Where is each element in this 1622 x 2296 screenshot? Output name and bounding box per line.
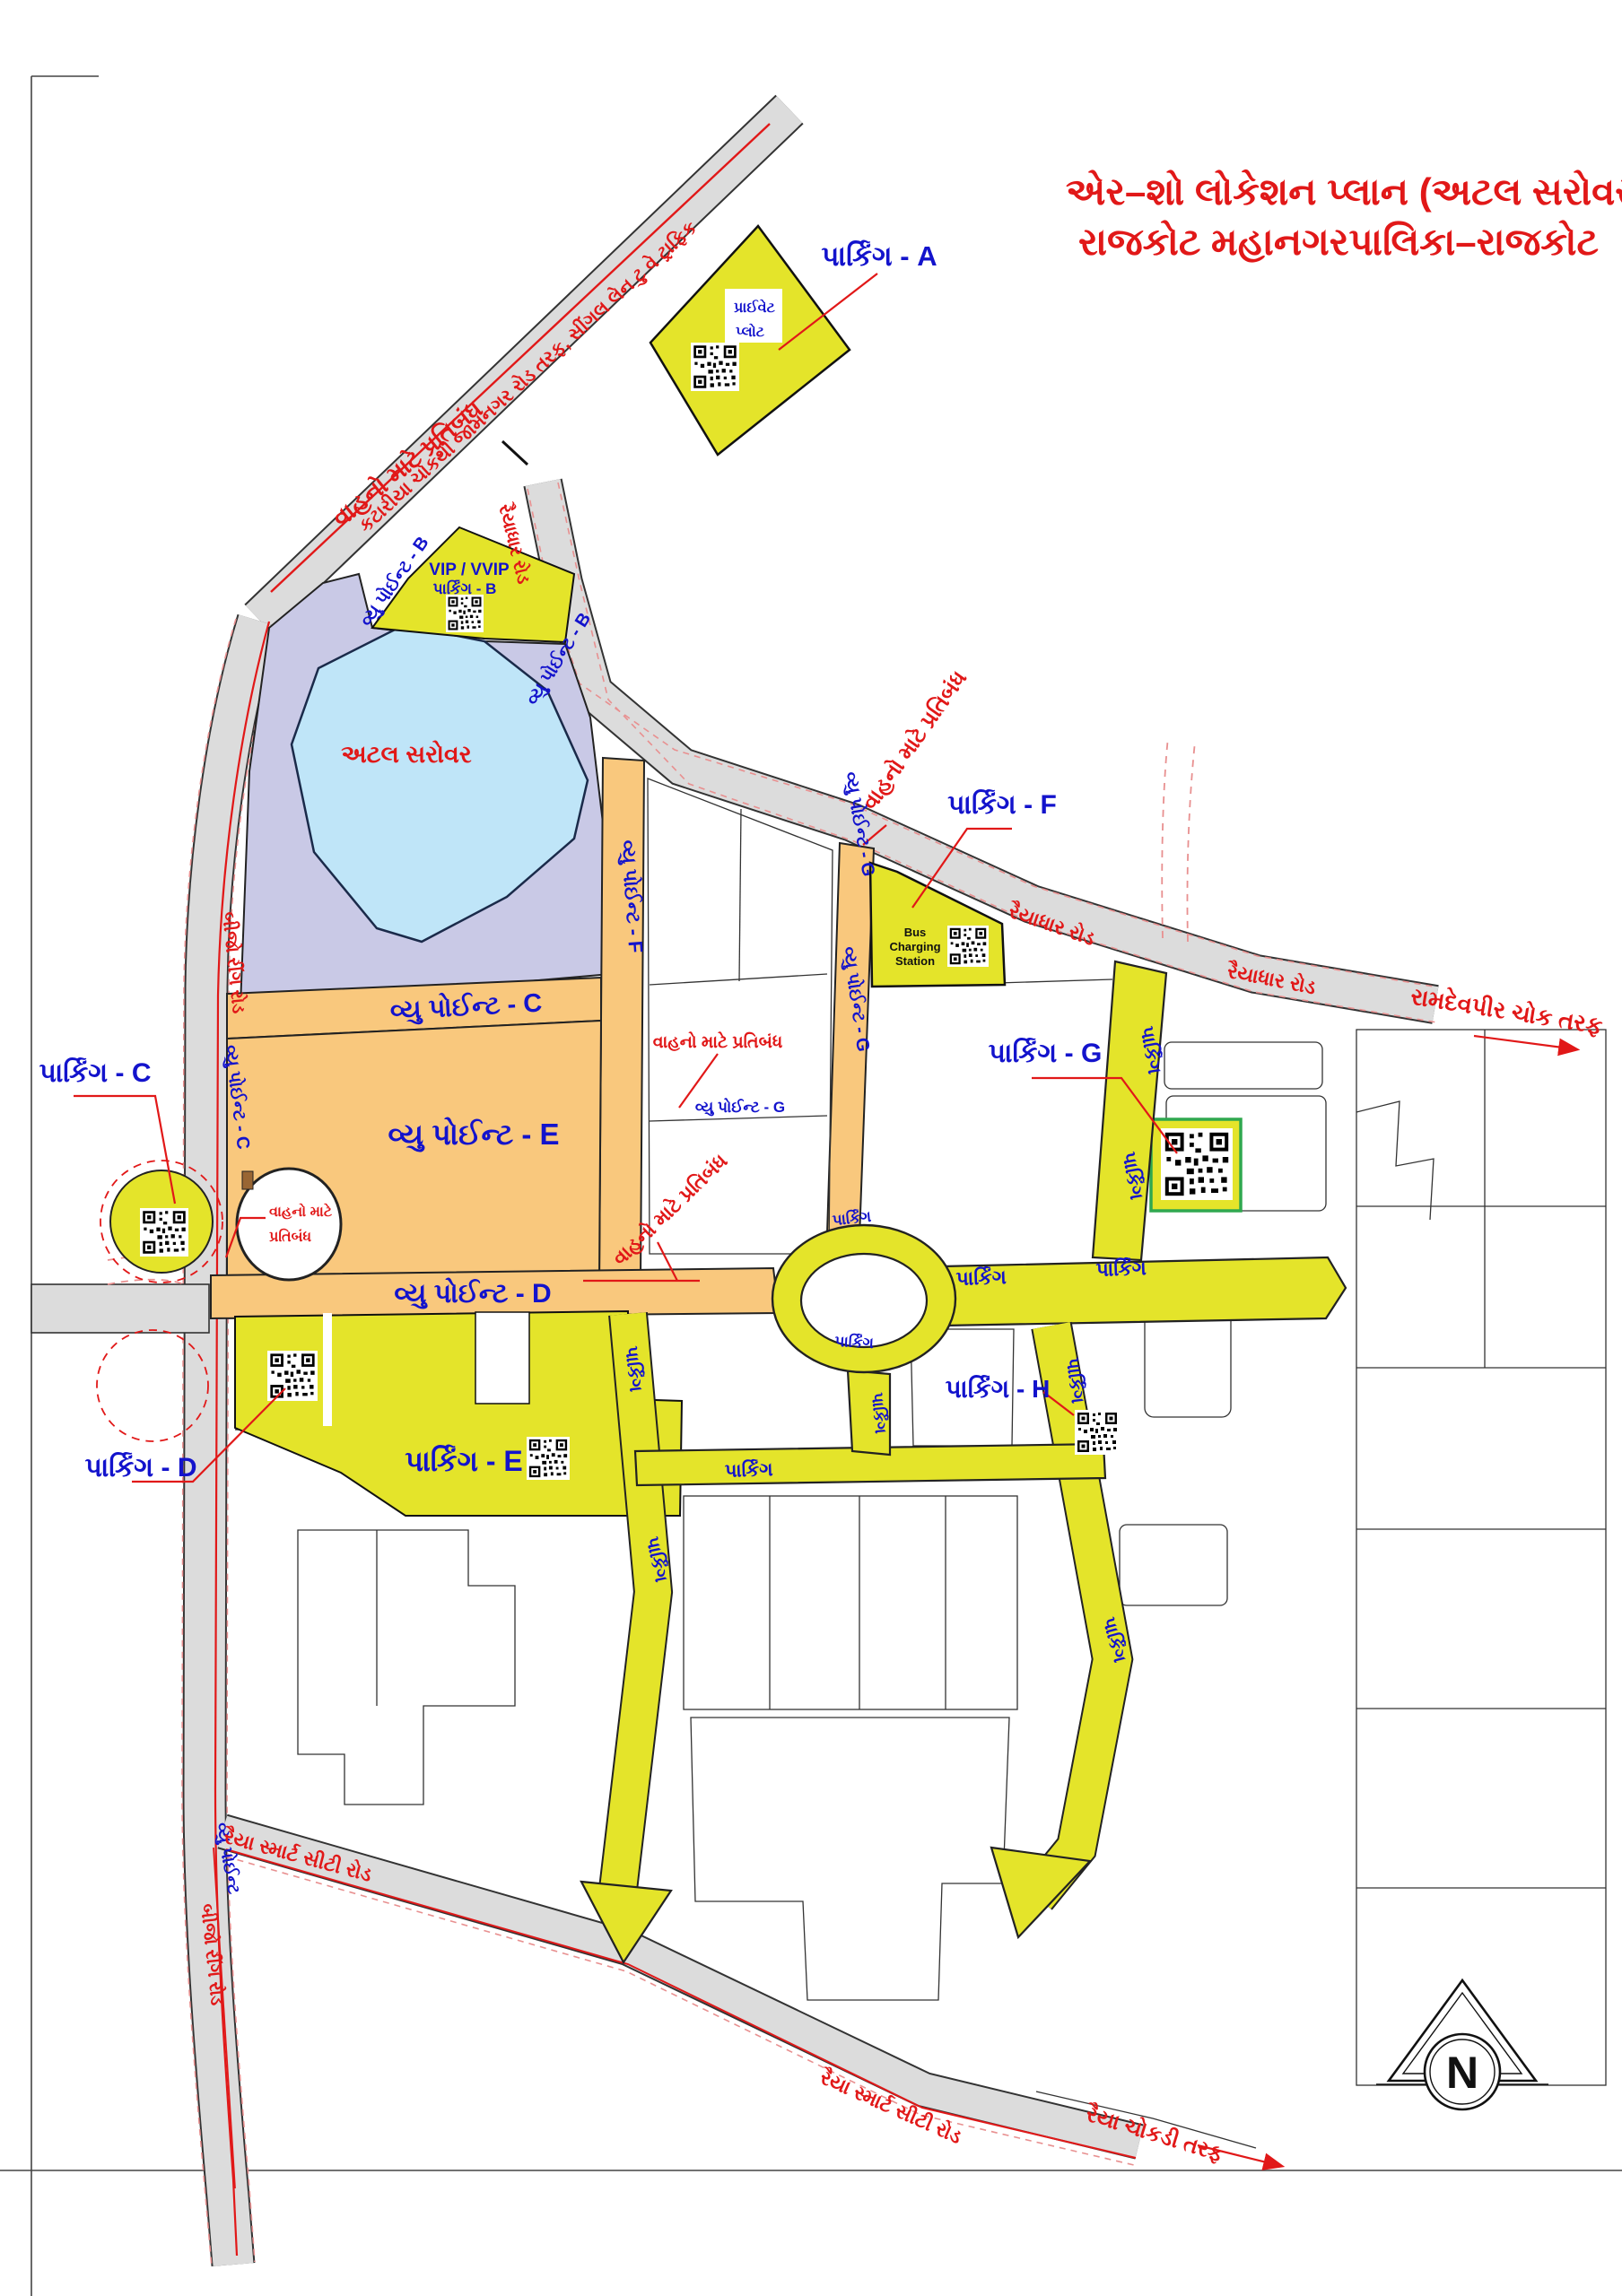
- label-parking-b-line2: પાર્કિંગ - B: [433, 579, 497, 597]
- tag-parking-rb-south-road: પાર્કિંગ: [868, 1392, 891, 1435]
- label-parking-c: પાર્કિંગ - C: [39, 1057, 151, 1088]
- label-parking-a: પાર્કિંગ - A: [821, 240, 937, 272]
- road-parking-g: [1093, 961, 1166, 1260]
- page-title-line1: એર–શો લોકેશન પ્લાન (અટલ સરોવર): [1066, 170, 1622, 213]
- tag-parking-roundabout-bottom: પાર્કિંગ: [834, 1332, 875, 1352]
- label-restriction-1: વાહનો માટે પ્રતિબંધ: [327, 395, 487, 533]
- qr-code-parking-a: [691, 343, 739, 391]
- gate-icon: [242, 1171, 253, 1189]
- map-canvas: એર–શો લોકેશન પ્લાન (અટલ સરોવર) રાજકોટ મહ…: [0, 0, 1622, 2296]
- label-parking-e: પાર્કિંગ - E: [405, 1445, 523, 1477]
- parking-a-plot: [650, 226, 850, 455]
- qr-code-parking-g: [1161, 1128, 1233, 1200]
- qr-code-parking-b: [446, 595, 484, 632]
- label-parking-d: પાર્કિંગ - D: [84, 1452, 196, 1483]
- qr-code-parking-e: [527, 1437, 570, 1480]
- label-private-plot-line2: પ્લોટ: [736, 322, 765, 340]
- label-viewpoint-e: વ્યુ પોઈન્ટ - E: [388, 1118, 559, 1152]
- label-restriction-circle-line2: પ્રતિબંધ: [269, 1228, 312, 1245]
- bus-label-line2: Charging: [889, 940, 940, 953]
- label-restriction-circle-line1: વાહનો માટે: [269, 1202, 333, 1220]
- label-ramdevpir-chowk: રામદેવપીર ચોક તરફ: [1408, 981, 1605, 1039]
- tag-parking-horizontal-road: પાર્કિંગ: [725, 1458, 773, 1482]
- label-viewpoint-d: વ્યુ પોઈન્ટ - D: [394, 1277, 551, 1309]
- north-label: N: [1446, 2048, 1478, 2098]
- label-private-plot-line1: પ્રાઈવેટ: [734, 298, 776, 316]
- bus-label-line1: Bus: [904, 926, 927, 939]
- road-west-stub: [31, 1284, 209, 1333]
- qr-code-parking-f: [947, 926, 989, 967]
- road-parking-south: [617, 1314, 653, 1897]
- label-restriction-3: વાહનો માટે પ્રતિબંધ: [653, 1031, 782, 1052]
- label-lake: અટલ સરોવર: [341, 740, 472, 768]
- restricted-circle-area: [237, 1169, 341, 1280]
- label-parking-b-line1: VIP / VVIP: [429, 561, 510, 579]
- label-parking-g: પાર્કિંગ - G: [989, 1038, 1103, 1068]
- label-parking-h: પાર્કિંગ - H: [946, 1374, 1051, 1403]
- label-viewpoint-g-3: વ્યુ પોઈન્ટ - G: [695, 1097, 785, 1117]
- qr-code-parking-c: [140, 1208, 188, 1257]
- page-title-line2: રાજકોટ મહાનગરપાલિકા–રાજકોટ: [1078, 220, 1599, 263]
- road-viewpoint-f: [599, 758, 644, 1281]
- tag-parking-main-road-2: પાર્કિંગ: [1095, 1257, 1147, 1281]
- bus-label-line3: Station: [895, 954, 935, 968]
- qr-code-parking-h: [1075, 1410, 1120, 1455]
- north-arrow: N: [1376, 1980, 1548, 2109]
- qr-code-parking-d: [267, 1351, 318, 1401]
- airshow-location-plan-page: એર–શો લોકેશન પ્લાન (અટલ સરોવર) રાજકોટ મહ…: [0, 0, 1622, 2296]
- label-parking-f: પાર્કિંગ - F: [947, 789, 1057, 820]
- tag-parking-main-road-1: પાર્કિંગ: [955, 1265, 1007, 1290]
- title-block: એર–શો લોકેશન પ્લાન (અટલ સરોવર) રાજકોટ મહ…: [1066, 170, 1622, 263]
